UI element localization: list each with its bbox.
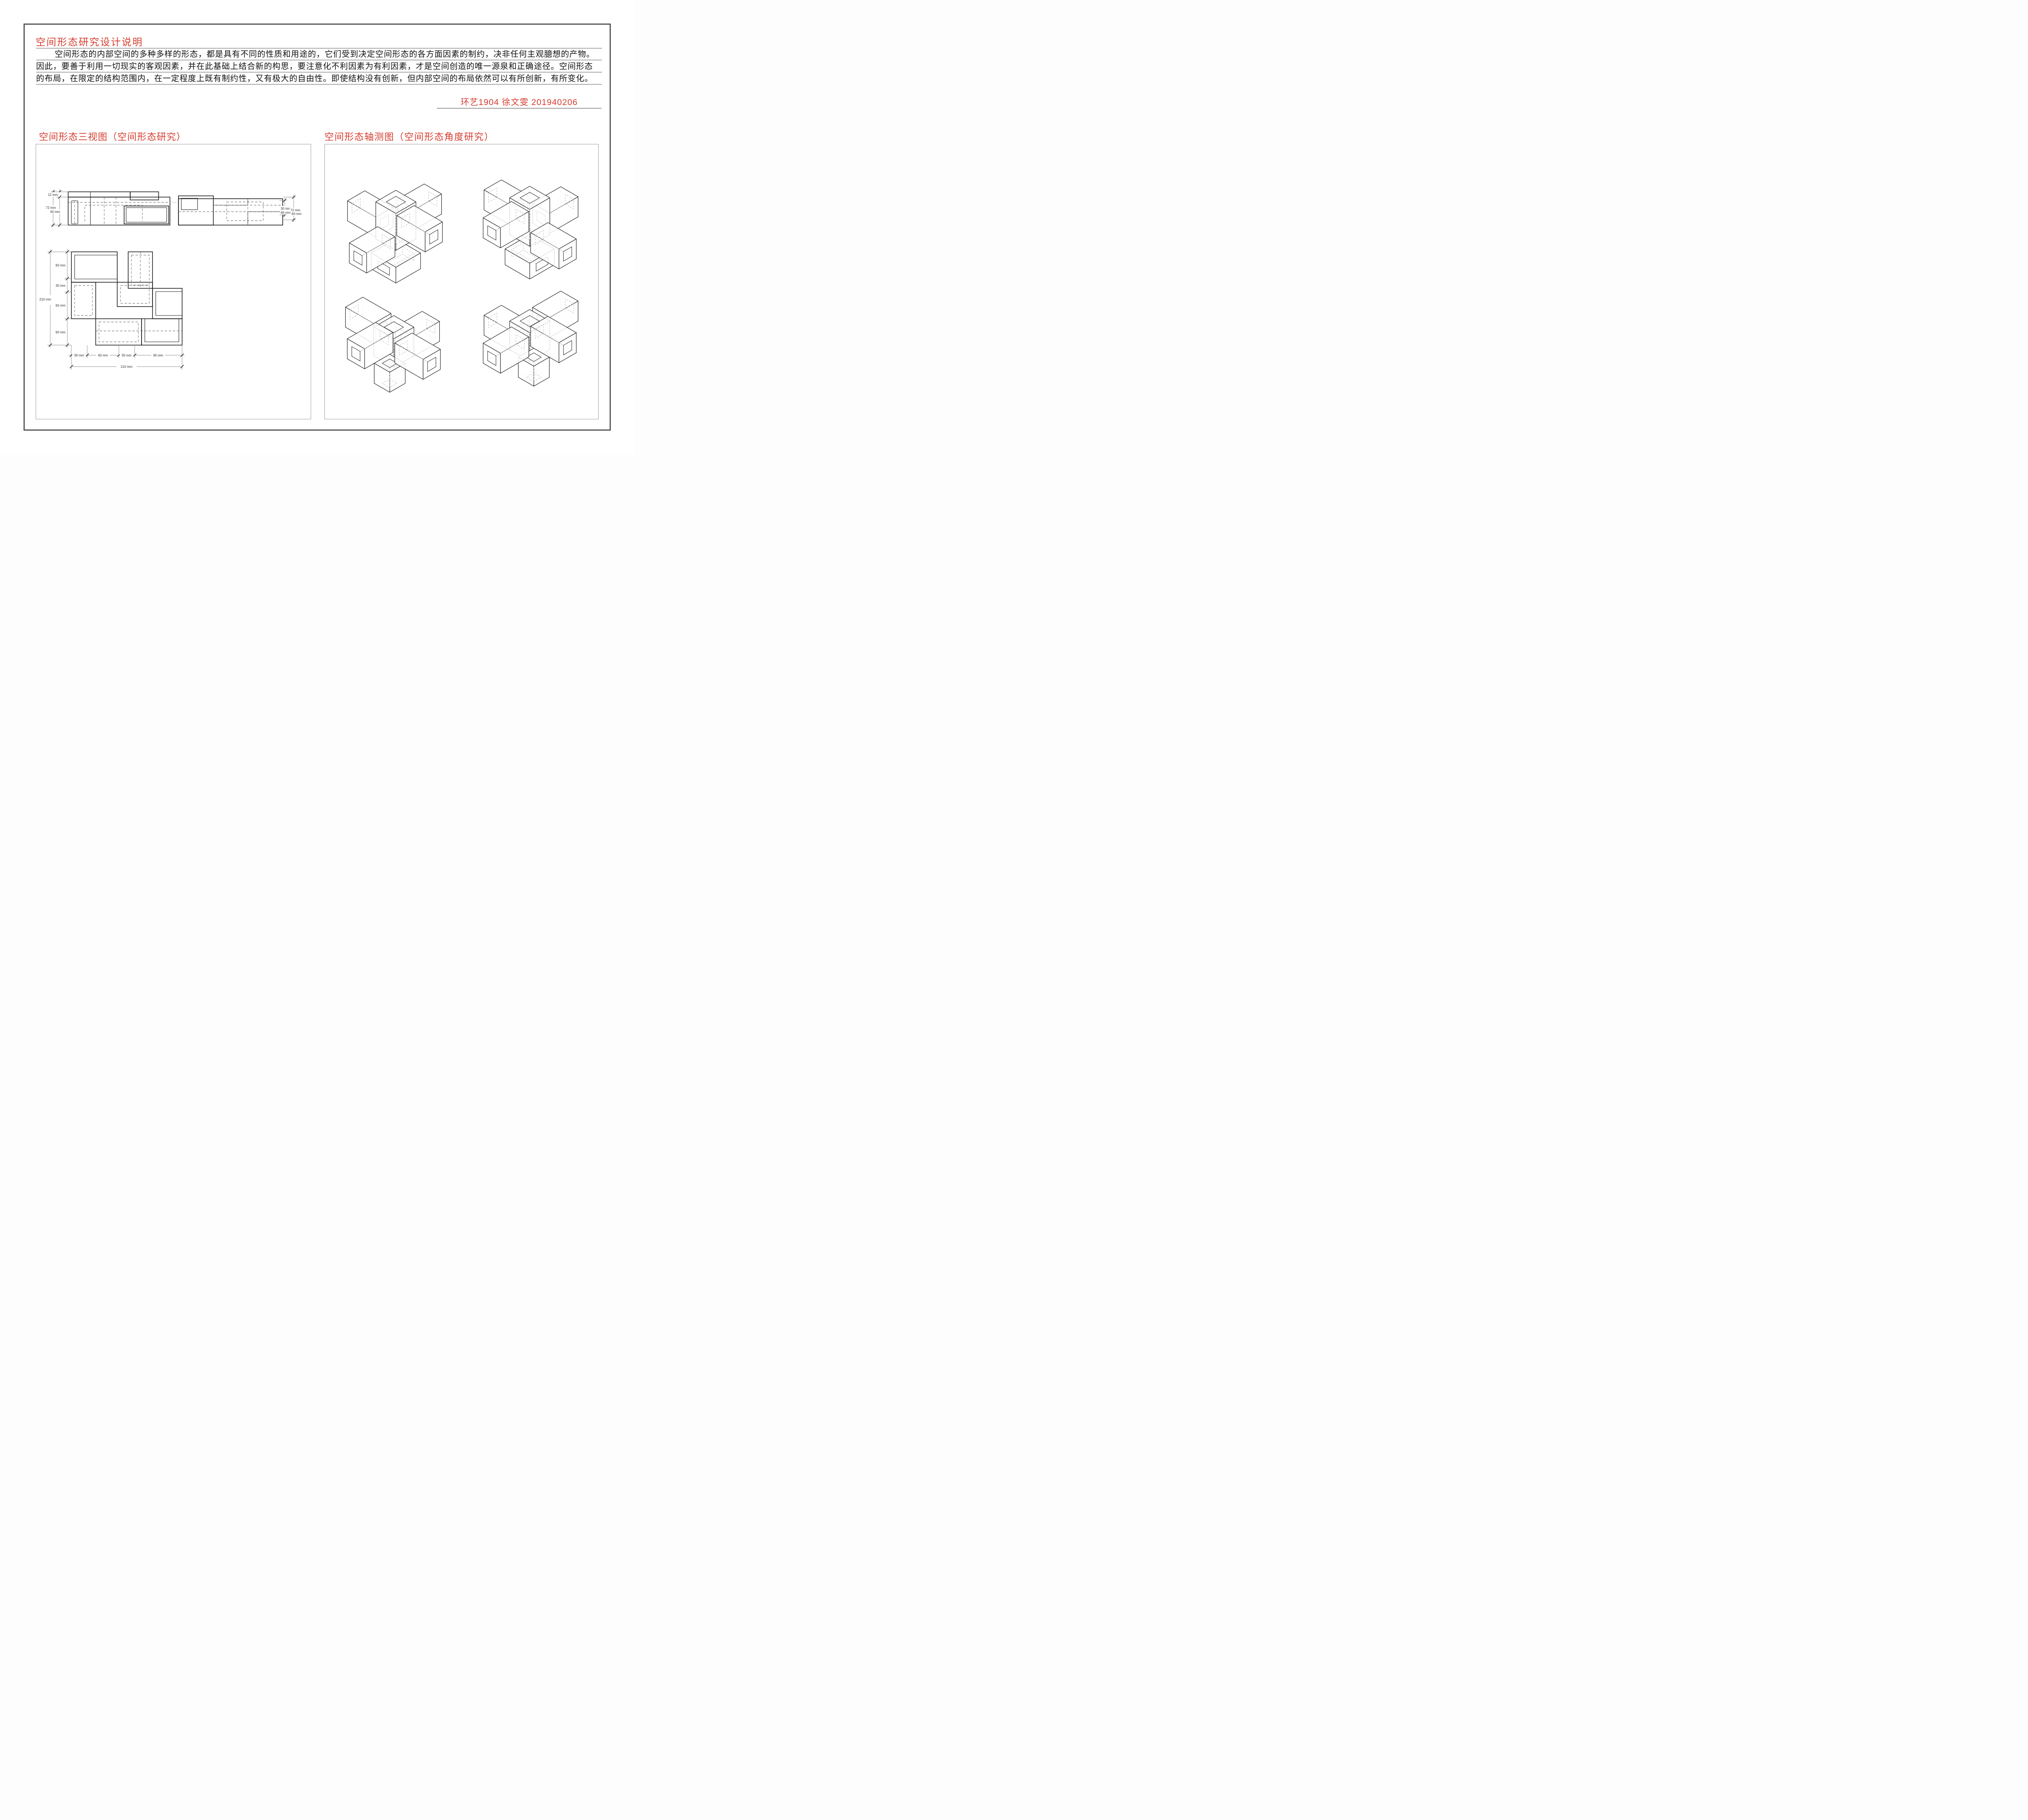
dim-label: 30 mm bbox=[74, 354, 84, 357]
plan-view: 60 mm 30 mm 210 mm 60 mm 60 mm bbox=[39, 249, 185, 370]
dim-label: 90 mm bbox=[153, 354, 163, 357]
axon-figure-2 bbox=[483, 180, 578, 279]
dim-label: 60 mm bbox=[56, 331, 66, 334]
dim-label: 30 mm bbox=[56, 284, 66, 288]
dim-label: 210 mm bbox=[39, 298, 51, 301]
section-title-three-view: 空间形态三视图（空间形态研究） bbox=[39, 129, 186, 143]
section-title-axonometric: 空间形态轴测图（空间形态角度研究） bbox=[324, 129, 494, 143]
dim-label: 210 mm bbox=[121, 365, 133, 369]
dim-label: 60 mm bbox=[56, 264, 66, 267]
dim-label: 30 mm bbox=[122, 354, 132, 357]
front-elevation: 12 mm 72 mm 60 mm bbox=[45, 189, 170, 227]
axonometric-panel bbox=[324, 144, 599, 419]
dim-label: 60 mm bbox=[98, 354, 108, 357]
dim-label: 12 mm bbox=[48, 193, 58, 197]
dim-label: 60 mm bbox=[50, 210, 60, 214]
axon-figure-1 bbox=[348, 184, 443, 283]
author-underline bbox=[437, 108, 602, 109]
dim-label: 60 mm bbox=[292, 212, 302, 216]
three-view-panel: 12 mm 72 mm 60 mm bbox=[36, 144, 311, 419]
description-line-1: 空间形态的内部空间的多种多样的形态，都是具有不同的性质和用途的，它们受到决定空间… bbox=[36, 49, 623, 60]
dim-label: 72 mm bbox=[46, 206, 56, 210]
axon-figure-4 bbox=[483, 291, 578, 386]
side-elevation: 30 mm 66 mm 72 mm 60 mm bbox=[170, 195, 303, 225]
author-credit: 环艺1904 徐文雯 201940206 bbox=[437, 96, 602, 108]
dim-label: 60 mm bbox=[56, 304, 66, 307]
page-title: 空间形态研究设计说明 bbox=[36, 34, 143, 48]
description-line-3: 的布局，在限定的结构范围内，在一定程度上既有制约性，又有极大的自由性。即使结构没… bbox=[36, 73, 604, 84]
dim-label: 30 mm bbox=[281, 207, 291, 210]
dim-label: 66 mm bbox=[281, 211, 291, 215]
axon-figure-3 bbox=[346, 297, 440, 393]
description-line-2: 因此，要善于利用一切现实的客观因素，并在此基础上结合新的构思，要注意化不利因素为… bbox=[36, 61, 604, 72]
design-sheet: 空间形态研究设计说明 空间形态的内部空间的多种多样的形态，都是具有不同的性质和用… bbox=[0, 0, 635, 455]
